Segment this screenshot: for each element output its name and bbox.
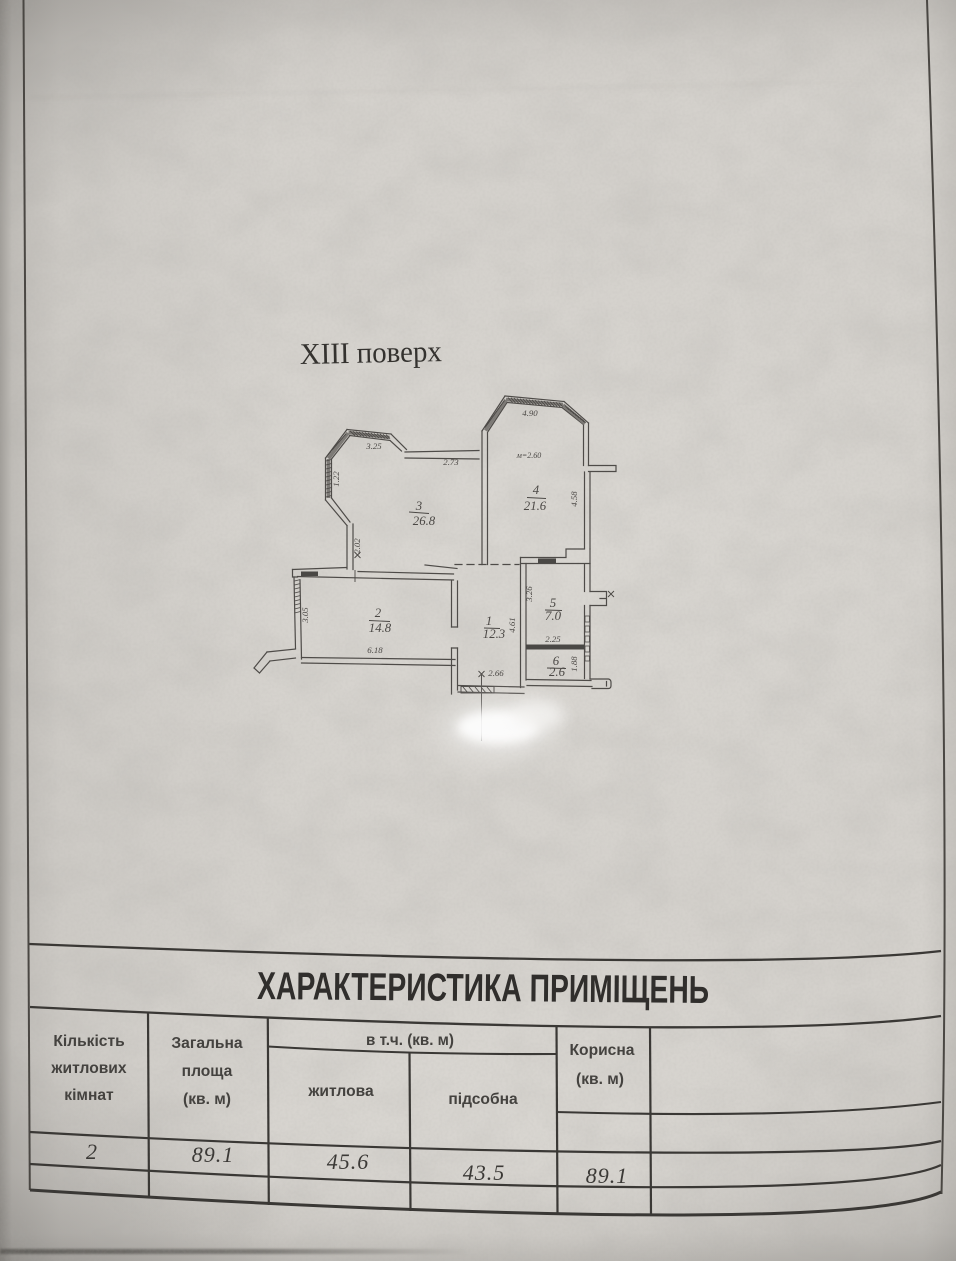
svg-text:в т.ч. (кв. м): в т.ч. (кв. м)	[366, 1032, 454, 1049]
svg-text:Загальна: Загальна	[171, 1035, 243, 1052]
svg-text:житлова: житлова	[307, 1083, 374, 1100]
svg-text:2.6: 2.6	[549, 665, 566, 679]
svg-text:2.73: 2.73	[443, 457, 459, 467]
svg-text:(кв. м): (кв. м)	[183, 1091, 231, 1108]
svg-text:Кількість: Кількість	[53, 1033, 124, 1050]
svg-text:43.5: 43.5	[463, 1160, 506, 1185]
svg-text:45.6: 45.6	[327, 1149, 370, 1174]
svg-text:7.0: 7.0	[545, 609, 562, 623]
svg-text:4: 4	[533, 483, 540, 497]
svg-text:89.1: 89.1	[586, 1163, 629, 1188]
svg-text:2.66: 2.66	[488, 668, 504, 678]
svg-text:89.1: 89.1	[192, 1142, 235, 1167]
svg-text:площа: площа	[182, 1063, 233, 1080]
svg-text:кімнат: кімнат	[64, 1087, 114, 1104]
svg-text:2.25: 2.25	[545, 634, 561, 644]
svg-text:1.88: 1.88	[569, 656, 579, 672]
svg-text:2: 2	[375, 606, 382, 620]
svg-text:3.05: 3.05	[300, 607, 310, 624]
svg-text:2.02: 2.02	[352, 538, 362, 554]
svg-text:3: 3	[415, 499, 422, 513]
svg-text:підсобна: підсобна	[448, 1091, 518, 1108]
svg-text:2: 2	[86, 1139, 98, 1164]
svg-text:1.22: 1.22	[331, 471, 341, 487]
svg-text:6.18: 6.18	[367, 645, 383, 655]
svg-text:3.25: 3.25	[365, 441, 382, 451]
svg-text:21.6: 21.6	[524, 499, 547, 513]
svg-text:(кв. м): (кв. м)	[576, 1071, 624, 1088]
svg-text:XIII поверх: XIII поверх	[299, 335, 442, 371]
svg-text:житлових: житлових	[50, 1060, 126, 1077]
svg-text:5: 5	[550, 596, 557, 610]
svg-text:1: 1	[486, 614, 492, 628]
svg-text:3.26: 3.26	[524, 586, 534, 603]
svg-text:14.8: 14.8	[369, 621, 392, 635]
svg-text:12.3: 12.3	[483, 627, 505, 641]
svg-text:4.90: 4.90	[522, 408, 538, 418]
svg-text:26.8: 26.8	[413, 514, 436, 528]
svg-text:м=2.60: м=2.60	[516, 451, 542, 460]
svg-text:ХАРАКТЕРИСТИКА ПРИМІЩЕНЬ: ХАРАКТЕРИСТИКА ПРИМІЩЕНЬ	[257, 965, 709, 1012]
svg-text:4.61: 4.61	[507, 617, 517, 632]
svg-text:Корисна: Корисна	[570, 1042, 635, 1059]
svg-text:4.58: 4.58	[569, 491, 579, 507]
